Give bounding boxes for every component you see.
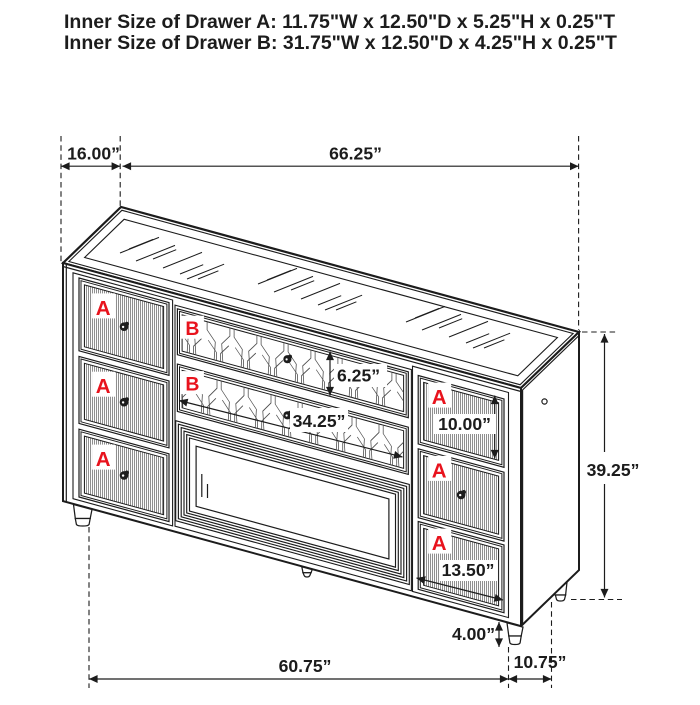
svg-text:66.25”: 66.25” <box>329 144 382 164</box>
svg-text:10.00”: 10.00” <box>438 414 491 434</box>
svg-text:13.50”: 13.50” <box>442 560 495 580</box>
svg-text:10.75”: 10.75” <box>514 652 567 672</box>
svg-text:4.00”: 4.00” <box>452 624 495 644</box>
svg-text:A: A <box>432 386 447 409</box>
svg-text:Inner Size of Drawer A: 11.75": Inner Size of Drawer A: 11.75"W x 12.50"… <box>64 11 615 33</box>
svg-text:Inner Size of Drawer B: 31.75": Inner Size of Drawer B: 31.75"W x 12.50"… <box>64 32 617 54</box>
svg-text:A: A <box>96 297 111 320</box>
svg-text:A: A <box>96 375 111 398</box>
svg-text:34.25”: 34.25” <box>293 411 346 431</box>
svg-text:A: A <box>432 532 447 555</box>
svg-text:A: A <box>432 459 447 482</box>
svg-text:16.00”: 16.00” <box>67 144 120 164</box>
svg-text:60.75”: 60.75” <box>279 656 332 676</box>
svg-text:A: A <box>96 448 111 471</box>
svg-text:6.25”: 6.25” <box>337 366 380 386</box>
svg-text:B: B <box>185 374 199 396</box>
svg-text:39.25”: 39.25” <box>587 460 640 480</box>
svg-text:B: B <box>185 318 199 340</box>
